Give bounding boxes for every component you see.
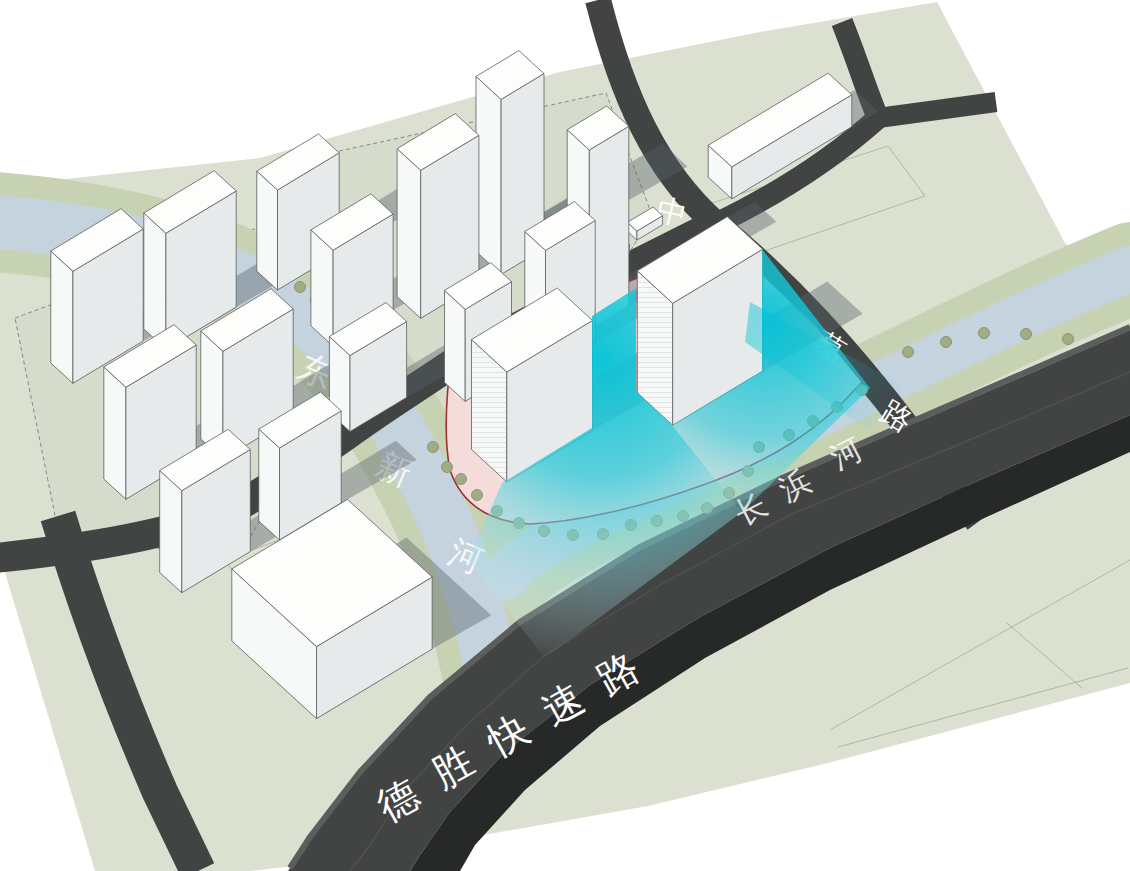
tree [472,490,483,501]
building-front-face [160,471,182,593]
tree [1021,329,1032,340]
tree [903,347,914,358]
tree [941,337,952,348]
site-plan-canvas: 德胜快速路中丰葛路东新河长浜河 [0,0,1130,871]
site-plan-svg: 德胜快速路中丰葛路东新河长浜河 [0,0,1130,871]
tree [442,462,453,473]
tree [428,442,439,453]
tree [456,474,467,485]
tree [295,282,306,293]
building-front-face [257,171,278,290]
building-front-face [476,76,501,274]
building-front-face [144,213,166,349]
building-front-face [397,149,421,319]
building-front-face [51,251,73,383]
building-front-face [104,367,126,499]
building-front-face [259,429,280,540]
tree [1063,334,1074,345]
tree [979,328,990,339]
